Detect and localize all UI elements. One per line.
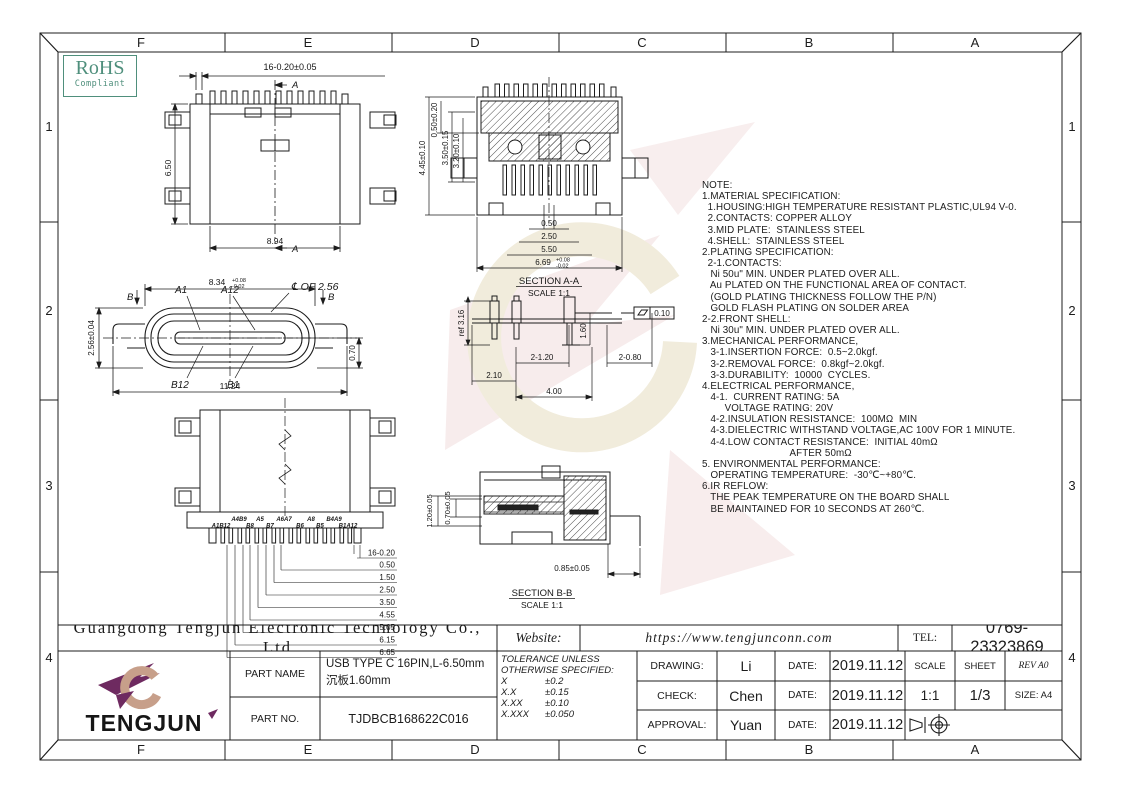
grid-col-b-top: B (789, 34, 829, 52)
rohs-badge: RoHS Compliant (63, 55, 137, 97)
dim-front-bottom: 11.24 (220, 381, 241, 391)
tol-xxx: X.XX (501, 698, 545, 709)
rev-label: REV A0 (1005, 651, 1062, 681)
tolerance-row: X.XX±0.10 (501, 698, 641, 709)
website-value: https://www.tengjunconn.com (580, 625, 898, 651)
pin-label-b5: B5 (316, 524, 324, 530)
part-name-label: PART NAME (230, 651, 320, 697)
drawing-sheet: F E D C B A F E D C B A 1 2 3 4 1 2 3 4 … (0, 0, 1123, 793)
section-a-linework (451, 77, 648, 222)
dim-secB-3: 0.85±0.05 (554, 564, 590, 573)
grid-col-d-top: D (455, 34, 495, 52)
dim-secA-4: 3.20±0.10 (452, 133, 461, 168)
part-no-value: TJDBCB168622C016 (320, 697, 497, 740)
logo-cell: TENGJUN (58, 651, 230, 740)
dim-side-2-080: 2-0.80 (619, 353, 642, 362)
section-mark-b-left: B (127, 292, 134, 303)
check-date-label: DATE: (775, 681, 830, 710)
section-b-scale: SCALE 1:1 (521, 600, 563, 610)
view-front: 8.34 +0.08 -0.02 A1 A12 B12 B1 ℄ OF 2.56… (75, 272, 385, 407)
pin-label-a12: A12 (220, 285, 239, 296)
part-no-label: PART NO. (230, 697, 320, 740)
dim-bv-5: 4.55 (379, 611, 395, 620)
tol-xxxx: X.XXX (501, 709, 545, 720)
part-name-line1: USB TYPE C 16PIN,L-6.50mm (326, 656, 497, 673)
dim-secA-b3: 5.50 (541, 245, 557, 254)
section-mark-a-bottom: A (291, 244, 298, 255)
tolerance-row: X.XXX±0.050 (501, 709, 641, 720)
dim-top-height: 6.50 (163, 159, 173, 176)
company-name: Guangdong Tengjun Electronic Technology … (58, 625, 497, 651)
dim-side-400: 4.00 (546, 387, 562, 396)
dim-side-2-120: 2-1.20 (531, 353, 554, 362)
approval-name: Yuan (717, 710, 775, 740)
section-b-title: SECTION B-B (512, 588, 573, 599)
section-mark-a-top: A (291, 80, 298, 91)
dim-front-left: 2.56±0.04 (87, 320, 96, 356)
grid-row-4-right: 4 (1063, 649, 1081, 667)
grid-row-1-left: 1 (40, 118, 58, 136)
grid-col-f-bottom: F (121, 741, 161, 759)
check-name: Chen (717, 681, 775, 710)
drawing-date-label: DATE: (775, 651, 830, 681)
dim-secA-b4-tol-dn: -0.02 (556, 264, 569, 270)
dim-side-160: 1.60 (579, 323, 588, 339)
tol-xxx-val: ±0.10 (545, 698, 569, 709)
front-linework (103, 293, 357, 384)
pin-label-a4b9: A4B9 (230, 517, 247, 523)
grid-row-1-right: 1 (1063, 118, 1081, 136)
scale-label: SCALE (905, 651, 955, 681)
grid-row-4-left: 4 (40, 649, 58, 667)
tol-xx-val: ±0.15 (545, 687, 569, 698)
part-name-value: USB TYPE C 16PIN,L-6.50mm 沉板1.60mm (326, 656, 497, 697)
rohs-title: RoHS (64, 57, 136, 79)
drawing-date: 2019.11.12 (830, 651, 905, 681)
view-side: ref 3.16 1.60 0.10 2-1.20 2-0.80 2.10 4.… (412, 283, 677, 418)
dim-bv-3: 2.50 (379, 586, 395, 595)
tolerance-row: X.X±0.15 (501, 687, 641, 698)
pin-label-a1b12: A1B12 (211, 524, 231, 530)
pin-label-b6: B6 (296, 524, 304, 530)
notes-block: NOTE: 1.MATERIAL SPECIFICATION: 1.HOUSIN… (702, 180, 1072, 515)
drawing-name: Li (717, 651, 775, 681)
dim-front-right: 0.70 (348, 345, 357, 361)
grid-col-d-bottom: D (455, 741, 495, 759)
drawing-label: DRAWING: (637, 651, 717, 681)
tolerance-header-2: OTHERWISE SPECIFIED: (501, 665, 641, 676)
third-angle-projection-icon (908, 713, 954, 737)
dim-top-pitch: 16-0.20±0.05 (264, 62, 317, 72)
dim-bv-4: 3.50 (379, 598, 395, 607)
grid-col-c-bottom: C (622, 741, 662, 759)
logo-wordmark: TENGJUN (86, 710, 203, 736)
dim-secA-1: 4.45±0.10 (418, 140, 427, 175)
sheet-value: 1/3 (955, 681, 1005, 710)
view-section-b: 1.20±0.05 0.70±0.05 0.85±0.05 SECTION B-… (412, 428, 657, 620)
view-top: 16-0.20±0.05 A A 6.50 8.94 (135, 52, 425, 272)
tol-x: X (501, 676, 545, 687)
grid-col-a-top: A (955, 34, 995, 52)
size-value: SIZE: A4 (1005, 681, 1062, 710)
pin-label-a5: A5 (255, 517, 264, 523)
grid-row-3-left: 3 (40, 477, 58, 495)
approval-label: APPROVAL: (637, 710, 717, 740)
dim-bv-2: 1.50 (379, 573, 395, 582)
tol-xx: X.X (501, 687, 545, 698)
dim-secA-2: 0.50±0.20 (430, 102, 439, 137)
dim-side-ref: ref 3.16 (457, 310, 466, 336)
top-dimensions (171, 72, 385, 252)
sheet-label: SHEET (955, 651, 1005, 681)
view-section-a: 4.45±0.10 0.50±0.20 3.50±0.15 3.20±0.10 … (415, 62, 670, 302)
approval-date: 2019.11.12 (830, 710, 905, 740)
tol-x-val: ±0.2 (545, 676, 563, 687)
grid-col-b-bottom: B (789, 741, 829, 759)
dim-secA-3: 3.50±0.15 (441, 130, 450, 165)
tolerance-cell: TOLERANCE UNLESS OTHERWISE SPECIFIED: X±… (497, 651, 641, 743)
tolerance-header-1: TOLERANCE UNLESS (501, 654, 641, 665)
website-label: Website: (497, 625, 580, 651)
tel-value: 0769-23323869 (952, 625, 1062, 651)
section-mark-b-right: B (328, 292, 335, 303)
grid-row-2-left: 2 (40, 302, 58, 320)
side-linework (472, 296, 674, 345)
pin-label-b7: B7 (266, 524, 274, 530)
tengjun-logo: TENGJUN (58, 651, 230, 740)
part-name-line2: 沉板1.60mm (326, 673, 497, 690)
grid-col-e-top: E (288, 34, 328, 52)
section-b-linework (480, 466, 640, 546)
grid-col-a-bottom: A (955, 741, 995, 759)
grid-col-f-top: F (121, 34, 161, 52)
check-label: CHECK: (637, 681, 717, 710)
pin-label-b1a12: B1A12 (339, 524, 358, 530)
scale-value: 1:1 (905, 681, 955, 710)
approval-date-label: DATE: (775, 710, 830, 740)
dim-secB-2: 0.70±0.05 (443, 491, 452, 524)
tel-label: TEL: (898, 625, 952, 651)
pin-label-b8: B8 (246, 524, 254, 530)
dim-secB-1: 1.20±0.05 (425, 494, 434, 527)
pin-label-b12: B12 (171, 380, 189, 391)
top-linework (165, 80, 396, 244)
dim-bv-0: 16-0.20 (368, 549, 396, 558)
dim-secA-b4: 6.69 (535, 258, 551, 267)
dim-side-210: 2.10 (486, 371, 502, 380)
flatness-value: 0.10 (654, 309, 670, 318)
pin-label-a6a7: A6A7 (275, 517, 292, 523)
dim-secA-b1: 0.50 (541, 219, 557, 228)
pin-label-b4a9: B4A9 (326, 517, 342, 523)
tol-xxxx-val: ±0.050 (545, 709, 574, 720)
view-bottom: A4B9 A5 A6A7 A8 B4A9 A1B12 B8 B7 B6 B5 B… (135, 392, 445, 660)
dim-secA-b2: 2.50 (541, 232, 557, 241)
grid-col-e-bottom: E (288, 741, 328, 759)
check-date: 2019.11.12 (830, 681, 905, 710)
pin-label-a8: A8 (306, 517, 315, 523)
dim-top-width: 8.94 (267, 236, 284, 246)
grid-col-c-top: C (622, 34, 662, 52)
dim-bv-1: 0.50 (379, 561, 395, 570)
logo-wordmark-accent (208, 709, 218, 719)
rohs-subtitle: Compliant (64, 79, 136, 89)
pin-label-a1: A1 (174, 285, 187, 296)
tolerance-row: X±0.2 (501, 676, 641, 687)
